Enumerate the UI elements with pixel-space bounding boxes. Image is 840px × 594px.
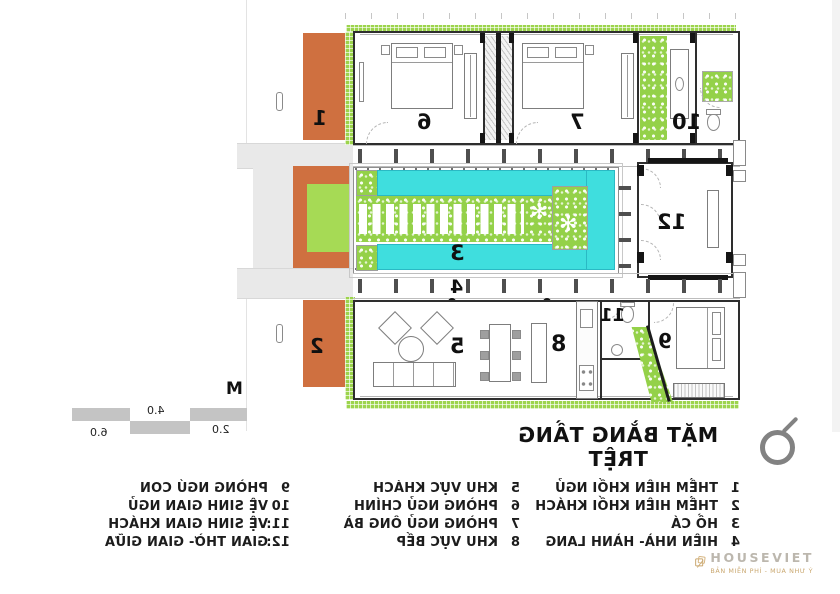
floor-plan-page: ✻ ✻	[0, 0, 840, 594]
dimension-ticks-top	[345, 13, 737, 19]
kitchen-island	[531, 323, 547, 383]
door-jamb	[726, 165, 733, 176]
watermark: HOUSEVIET BẢN MIỄN PHÍ - MUA NHƯ Ý	[694, 544, 814, 582]
door-jamb	[480, 133, 485, 143]
door-jamb	[726, 252, 733, 263]
legend-item: 12:GIAN THỜ- GIAN GIỮA	[80, 533, 290, 551]
legend-number: 1	[718, 481, 740, 496]
scale-mark: 2.0	[212, 423, 230, 436]
legend-number: 7	[498, 517, 520, 532]
legend-item: 9PHÒNG NGỦ CON	[80, 479, 290, 497]
dining-chair	[480, 372, 489, 381]
door-jamb	[509, 133, 514, 143]
legend-label: GIAN THỜ- GIAN GIỮA	[105, 535, 268, 550]
scale-mark: 4.0	[147, 404, 165, 417]
path-band-bottom	[237, 268, 353, 299]
legend-item: 2THỀM HIÊN KHỐI KHÁCH	[530, 497, 740, 515]
legend-item: 7PHÒNG NGỦ ÔNG BÀ	[320, 515, 520, 533]
neighbor-lot-bottom	[246, 297, 307, 431]
watermark-brand: HOUSEVIET	[710, 550, 814, 565]
scale-unit: M	[226, 381, 243, 398]
north-arrow-tail	[782, 417, 799, 434]
legend-label: HIÊN NHÀ- HÀNH LANG	[545, 535, 718, 550]
pillow	[527, 47, 549, 58]
planted-square	[356, 245, 378, 271]
veranda-line	[353, 273, 740, 274]
site-boundary-right	[832, 0, 840, 432]
legend-column-3: 9PHÒNG NGỦ CON 10VỆ SINH GIAN NGỦ 11:VỆ …	[80, 479, 290, 551]
stove	[579, 365, 594, 391]
legend-item: 11:VỆ SINH GIAN KHÁCH	[80, 515, 290, 533]
room-label-8: 8	[551, 334, 566, 356]
legend-label: VỆ SINH GIAN NGỦ	[128, 499, 268, 514]
door-jamb	[690, 33, 695, 43]
planted-square	[356, 170, 378, 196]
legend-label: VỆ SINH GIAN KHÁCH	[108, 517, 268, 532]
scale-segment	[130, 421, 190, 434]
legend-number: 11:	[268, 517, 290, 532]
north-arrow-icon	[760, 430, 795, 465]
legend-item: 3HỒ CÁ	[530, 515, 740, 533]
toilet-tank	[706, 109, 721, 115]
exterior-step	[733, 170, 746, 182]
tree-symbol: ✻	[530, 202, 548, 224]
planter-lawn	[307, 184, 350, 252]
legend-number: 5	[498, 481, 520, 496]
dining-table	[489, 324, 511, 382]
room-label-7: 7	[570, 112, 585, 133]
legend-item: 1THỀM HIÊN KHỐI NGỦ	[530, 479, 740, 497]
wardrobe	[673, 383, 725, 398]
pillow	[424, 47, 446, 58]
door-jamb	[509, 33, 514, 43]
exterior-step	[733, 272, 746, 298]
legend-label: HỒ CÁ	[671, 517, 718, 532]
dining-chair	[480, 351, 489, 360]
kitchen-sink	[580, 309, 593, 328]
room-label-4: 4	[450, 278, 463, 297]
veranda-columns	[358, 279, 735, 293]
scale-mark: 6.0	[90, 426, 108, 439]
closet-room-7	[501, 36, 512, 140]
door-jamb	[637, 252, 644, 263]
partition-wall	[637, 31, 639, 145]
dining-chair	[512, 330, 521, 339]
nightstand	[381, 45, 390, 55]
toilet	[707, 114, 720, 131]
window-slab	[359, 62, 364, 102]
gate-post	[276, 92, 283, 111]
veranda-line	[353, 145, 740, 146]
dining-chair	[512, 351, 521, 360]
nightstand	[585, 45, 594, 55]
fish-pond-connector	[586, 170, 615, 270]
wardrobe-line	[627, 55, 628, 117]
corridor-columns	[619, 172, 631, 268]
room-label-9: 9	[658, 331, 672, 351]
tree-symbol: ✻	[559, 214, 577, 236]
pillow	[712, 312, 721, 335]
bed-line	[523, 62, 583, 63]
exterior-step	[733, 140, 746, 166]
door-jamb	[633, 133, 638, 143]
green-strip-bottom	[346, 401, 739, 409]
room-label-10: 10	[672, 112, 701, 133]
watermark-texts: HOUSEVIET BẢN MIỄN PHÍ - MUA NHƯ Ý	[710, 544, 814, 575]
door-jamb	[690, 133, 695, 143]
legend-item: 10VỆ SINH GIAN NGỦ	[80, 497, 290, 515]
legend-number: 6	[498, 499, 520, 514]
closet-room-6	[485, 36, 496, 140]
room-label-1: 1	[313, 108, 327, 128]
legend-label: KHU VỰC BẾP	[396, 535, 498, 550]
legend-label: PHÒNG NGỦ CHÍNH	[354, 499, 498, 514]
watermark-tagline: BẢN MIỄN PHÍ - MUA NHƯ Ý	[710, 567, 814, 575]
watermark-logo-icon	[694, 544, 706, 582]
legend-label: PHÒNG NGỦ ÔNG BÀ	[344, 517, 498, 532]
nightstand	[454, 45, 463, 55]
legend-item: 8KHU VỰC BẾP	[320, 533, 520, 551]
stepping-stones	[359, 204, 524, 234]
partition-wall	[512, 31, 514, 145]
sofa	[373, 362, 456, 387]
scale-segment	[72, 408, 130, 421]
bath-garden	[640, 36, 667, 140]
wall-bar	[648, 158, 728, 163]
legend-item: 5KHU VỰC KHÁCH	[320, 479, 520, 497]
exterior-step	[733, 254, 746, 266]
plan-title: MẶT BẰNG TẦNG TRỆT	[503, 423, 733, 471]
bed-line	[707, 308, 708, 368]
dining-chair	[480, 330, 489, 339]
dining-chair	[512, 372, 521, 381]
door-jamb	[637, 165, 644, 176]
room-label-5: 5	[450, 336, 465, 357]
pillow	[396, 47, 418, 58]
neighbor-lot-top	[246, 0, 307, 144]
legend-column-2: 5KHU VỰC KHÁCH 6PHÒNG NGỦ CHÍNH 7PHÒNG N…	[320, 479, 520, 551]
legend-label: THỀM HIÊN KHỐI KHÁCH	[535, 499, 718, 514]
altar-cabinet	[707, 190, 719, 248]
room-label-11: 11	[600, 307, 625, 325]
legend-number: 3	[718, 517, 740, 532]
room-label-2: 2	[310, 336, 324, 356]
door-jamb	[633, 33, 638, 43]
coffee-table	[398, 336, 424, 362]
sink	[611, 344, 623, 356]
room-label-12: 12	[657, 212, 686, 233]
pillow	[555, 47, 577, 58]
legend-number: 8	[498, 535, 520, 550]
legend-label: THỀM HIÊN KHỐI NGỦ	[555, 481, 718, 496]
legend-number: 9	[268, 481, 290, 496]
pillow	[712, 338, 721, 361]
legend-item: 6PHÒNG NGỦ CHÍNH	[320, 497, 520, 515]
legend-number: 10	[268, 499, 290, 514]
room-label-6: 6	[417, 112, 432, 133]
legend-number: 2	[718, 499, 740, 514]
scale-segment	[190, 408, 247, 421]
bed-line	[392, 62, 452, 63]
legend-column-1: 1THỀM HIÊN KHỐI NGỦ 2THỀM HIÊN KHỐI KHÁC…	[530, 479, 740, 551]
gate-post	[276, 324, 283, 343]
legend-label: KHU VỰC KHÁCH	[373, 481, 498, 496]
legend-number: 12:	[268, 535, 290, 550]
sink	[675, 77, 684, 91]
window-line	[360, 34, 733, 35]
room-label-3: 3	[450, 243, 465, 264]
wardrobe-line	[470, 55, 471, 117]
door-jamb	[480, 33, 485, 43]
legend-label: PHÒNG NGỦ CON	[140, 481, 268, 496]
